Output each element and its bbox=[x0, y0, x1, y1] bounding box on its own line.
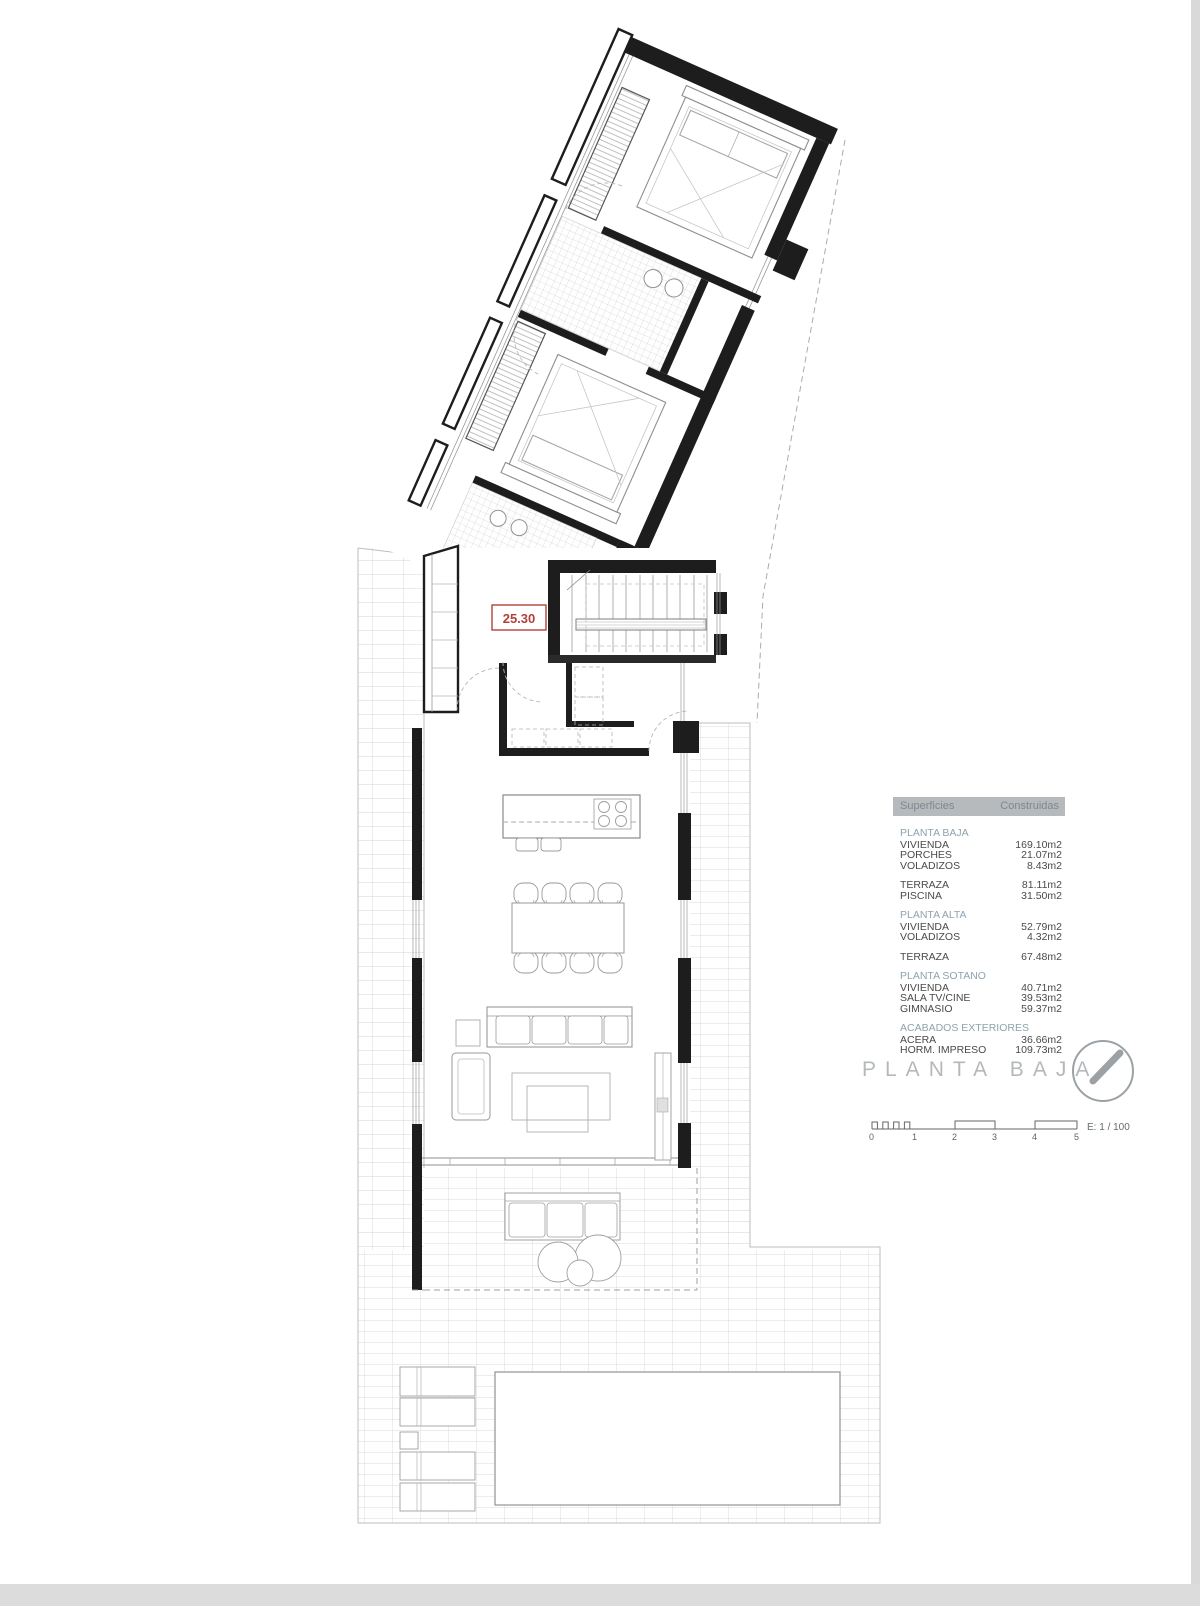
surfaces-table: Superficies Construidas PLANTA BAJAVIVIE… bbox=[893, 797, 1065, 1056]
coffee-table bbox=[527, 1086, 588, 1132]
row-value: 59.37m2 bbox=[1021, 1004, 1062, 1015]
pouf bbox=[567, 1260, 593, 1286]
row-value: 21.07m2 bbox=[1021, 850, 1062, 861]
svg-text:25.30: 25.30 bbox=[503, 611, 536, 626]
surfaces-table-header: Superficies Construidas bbox=[893, 797, 1065, 816]
scale-label: E: 1 / 100 bbox=[1087, 1122, 1130, 1133]
table-section: TERRAZA81.11m2PISCINA31.50m2 bbox=[900, 880, 1062, 901]
scale-bar bbox=[872, 1121, 1077, 1129]
row-value: 31.50m2 bbox=[1021, 891, 1062, 902]
stool bbox=[541, 838, 561, 851]
section-title: PLANTA ALTA bbox=[900, 910, 1062, 921]
pool bbox=[495, 1372, 840, 1505]
table-row: HORM. IMPRESO109.73m2 bbox=[900, 1045, 1062, 1056]
entry-hall bbox=[457, 662, 699, 756]
scale-tick: 2 bbox=[952, 1132, 957, 1142]
level-label: 25.30 bbox=[492, 605, 546, 630]
table-section: PLANTA BAJAVIVIENDA169.10m2PORCHES21.07m… bbox=[900, 828, 1062, 871]
table-row: TERRAZA81.11m2 bbox=[900, 880, 1062, 891]
living-area bbox=[452, 1007, 671, 1160]
row-value: 67.48m2 bbox=[1021, 952, 1062, 963]
page-edge bbox=[1191, 0, 1200, 1606]
scale-tick: 0 bbox=[869, 1132, 874, 1142]
table-row: VOLADIZOS8.43m2 bbox=[900, 861, 1062, 872]
page-edge bbox=[0, 1584, 1200, 1606]
table-section: TERRAZA67.48m2 bbox=[900, 952, 1062, 963]
row-label: TERRAZA bbox=[900, 880, 949, 891]
row-label: HORM. IMPRESO bbox=[900, 1045, 986, 1056]
row-label: VOLADIZOS bbox=[900, 932, 960, 943]
plan-title: PLANTA BAJA bbox=[862, 1058, 1098, 1082]
row-label: TERRAZA bbox=[900, 952, 949, 963]
drawing-sheet: 25.30 Superficies Construidas PLANTA BAJ… bbox=[0, 0, 1200, 1606]
row-label: PORCHES bbox=[900, 850, 952, 861]
dining-table bbox=[512, 903, 624, 953]
section-title: PLANTA BAJA bbox=[900, 828, 1062, 839]
table-row: GIMNASIO59.37m2 bbox=[900, 1004, 1062, 1015]
surfaces-table-body: PLANTA BAJAVIVIENDA169.10m2PORCHES21.07m… bbox=[893, 828, 1065, 1056]
side-table bbox=[456, 1020, 480, 1046]
scale-tick: 5 bbox=[1074, 1132, 1079, 1142]
row-label: SALA TV/CINE bbox=[900, 993, 970, 1004]
stool bbox=[516, 838, 538, 851]
row-value: 39.53m2 bbox=[1021, 993, 1062, 1004]
row-value: 81.11m2 bbox=[1022, 880, 1062, 891]
side-table bbox=[400, 1432, 418, 1449]
row-value: 8.43m2 bbox=[1027, 861, 1062, 872]
col-label: Superficies bbox=[900, 801, 954, 812]
section-title: PLANTA SOTANO bbox=[900, 971, 1062, 982]
stair-block bbox=[548, 556, 730, 664]
row-label: PISCINA bbox=[900, 891, 942, 902]
col-value: Construidas bbox=[1000, 801, 1059, 812]
table-row: PORCHES21.07m2 bbox=[900, 850, 1062, 861]
table-section: PLANTA ALTAVIVIENDA52.79m2VOLADIZOS4.32m… bbox=[900, 910, 1062, 943]
scale-tick: 1 bbox=[912, 1132, 917, 1142]
section-title: ACABADOS EXTERIORES bbox=[900, 1023, 1062, 1034]
row-value: 4.32m2 bbox=[1027, 932, 1062, 943]
table-row: SALA TV/CINE39.53m2 bbox=[900, 993, 1062, 1004]
row-label: VOLADIZOS bbox=[900, 861, 960, 872]
kitchen bbox=[503, 795, 640, 851]
scale-tick: 4 bbox=[1032, 1132, 1037, 1142]
table-row: VOLADIZOS4.32m2 bbox=[900, 932, 1062, 943]
table-row: TERRAZA67.48m2 bbox=[900, 952, 1062, 963]
entry-closet bbox=[424, 546, 458, 712]
table-section: PLANTA SOTANOVIVIENDA40.71m2SALA TV/CINE… bbox=[900, 971, 1062, 1014]
dining-area bbox=[512, 883, 624, 973]
table-row: PISCINA31.50m2 bbox=[900, 891, 1062, 902]
table-section: ACABADOS EXTERIORESACERA36.66m2HORM. IMP… bbox=[900, 1023, 1062, 1056]
row-label: GIMNASIO bbox=[900, 1004, 953, 1015]
scale-tick: 3 bbox=[992, 1132, 997, 1142]
row-value: 109.73m2 bbox=[1015, 1045, 1062, 1056]
